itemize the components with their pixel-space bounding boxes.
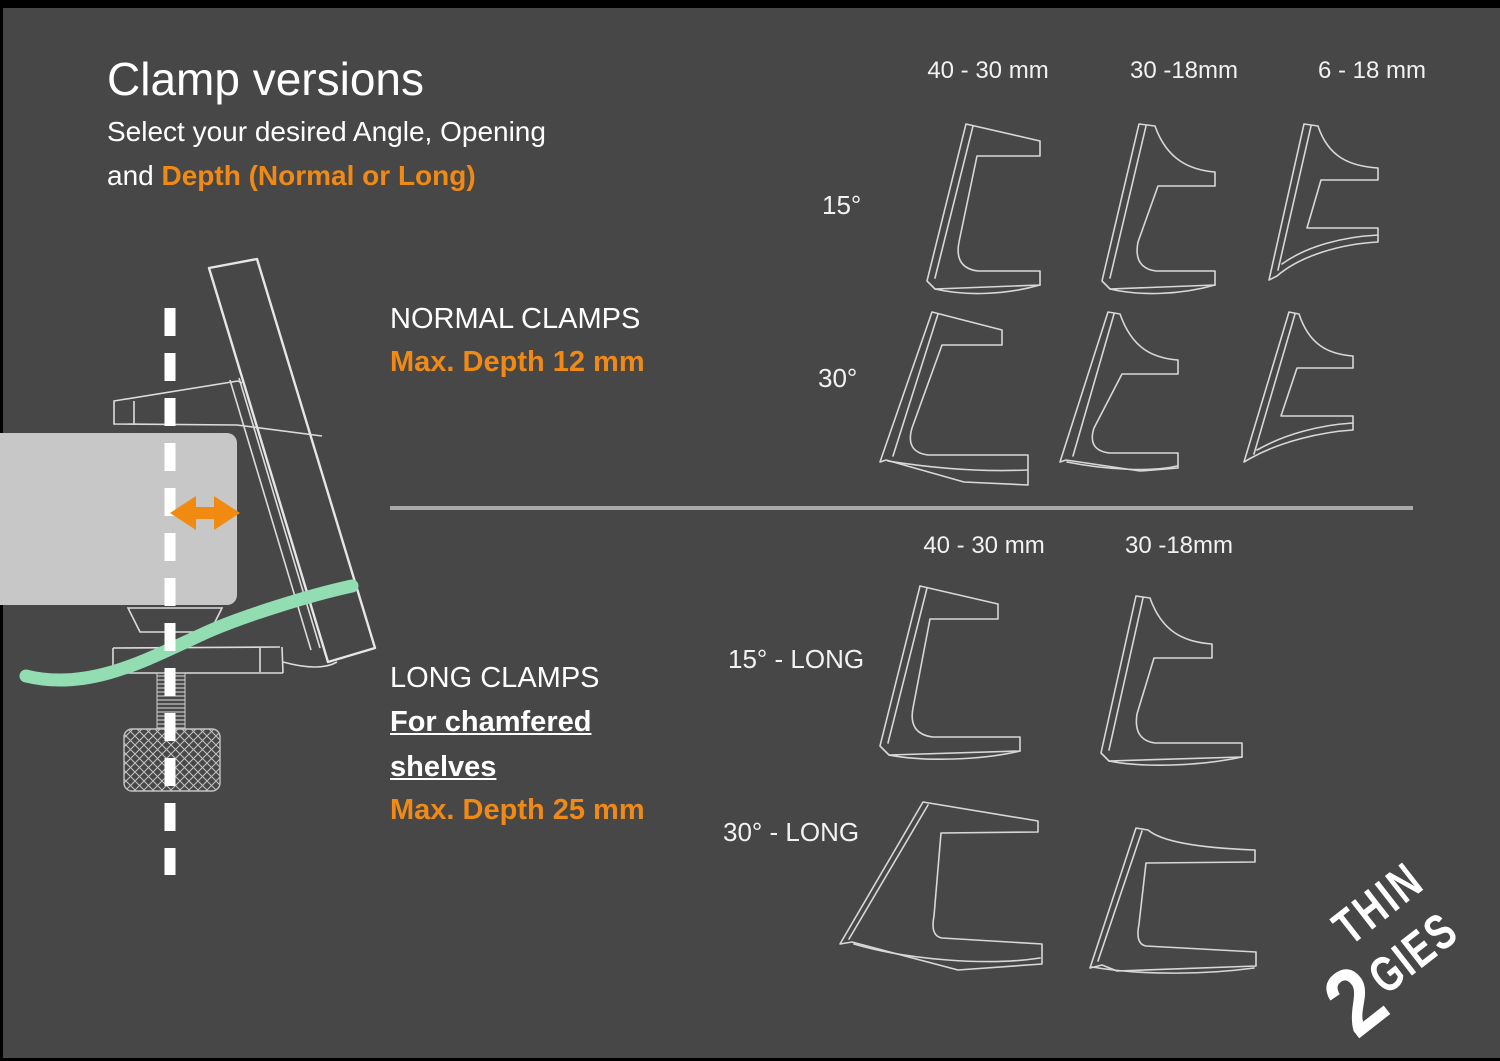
clamp-mounting-illustration bbox=[0, 250, 400, 900]
infographic-clamp-versions: Clamp versions Select your desired Angle… bbox=[0, 0, 1500, 1061]
clamp-drawing-15deg-long-40-30 bbox=[872, 576, 1047, 768]
clamp-drawing-30deg-6-18 bbox=[1235, 302, 1390, 492]
clamp-drawing-15deg-long-30-18 bbox=[1092, 586, 1254, 772]
subtitle-depth-highlight: Depth (Normal or Long) bbox=[162, 160, 476, 191]
clamp-drawing-15deg-6-18 bbox=[1262, 112, 1407, 302]
normal-clamps-heading: NORMAL CLAMPS bbox=[390, 303, 640, 336]
clamp-drawing-30deg-long-40-30 bbox=[828, 792, 1046, 992]
subtitle-line1: Select your desired Angle, Opening bbox=[107, 116, 546, 148]
section-divider bbox=[390, 506, 1413, 510]
normal-row-15: 15° bbox=[822, 190, 861, 221]
normal-row-30: 30° bbox=[818, 363, 857, 394]
clamp-drawing-30deg-long-30-18 bbox=[1050, 812, 1262, 1004]
page-title: Clamp versions bbox=[107, 52, 424, 106]
clamp-drawing-30deg-30-18 bbox=[1052, 302, 1207, 492]
long-col-30-18: 30 -18mm bbox=[1094, 532, 1264, 560]
normal-clamps-depth-note: Max. Depth 12 mm bbox=[390, 346, 645, 379]
clamp-drawing-30deg-40-30 bbox=[872, 302, 1042, 497]
clamp-drawing-15deg-30-18 bbox=[1095, 112, 1245, 302]
long-row-15: 15° - LONG bbox=[728, 644, 864, 675]
long-clamps-note-line1: For chamfered bbox=[390, 706, 591, 739]
subtitle-line2: and Depth (Normal or Long) bbox=[107, 160, 476, 192]
top-black-border bbox=[0, 0, 1500, 8]
normal-col-40-30: 40 - 30 mm bbox=[903, 57, 1073, 85]
subtitle-and: and bbox=[107, 160, 162, 191]
clamp-drawing-15deg-40-30 bbox=[920, 112, 1070, 302]
normal-col-6-18: 6 - 18 mm bbox=[1287, 57, 1457, 85]
long-clamps-depth-note: Max. Depth 25 mm bbox=[390, 794, 645, 827]
long-col-40-30: 40 - 30 mm bbox=[899, 532, 1069, 560]
long-clamps-heading: LONG CLAMPS bbox=[390, 662, 600, 695]
long-clamps-note-line2: shelves bbox=[390, 751, 496, 784]
clamp-top-arm bbox=[114, 381, 322, 436]
logo-2thingies: THIN 2 GIES bbox=[1291, 851, 1500, 1061]
normal-col-30-18: 30 -18mm bbox=[1099, 57, 1269, 85]
